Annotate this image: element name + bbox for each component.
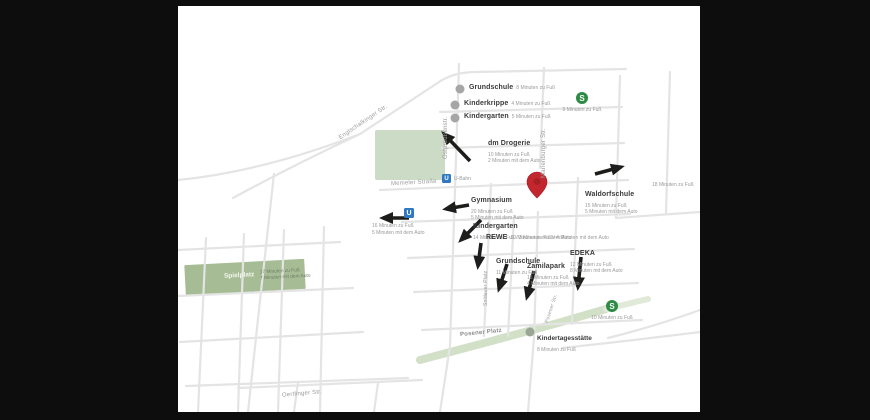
kindertagesstaette-dot <box>526 328 535 337</box>
screenshot-stage: Grundschule 8 Minuten zu Fuß Kinderkripp… <box>0 0 870 420</box>
poi-label: dm Drogerie <box>488 140 530 147</box>
ubahn-icon-west: U <box>404 208 414 218</box>
poi-label: Kindertagesstätte <box>537 335 592 342</box>
poi-label: Kindergarten <box>464 113 509 120</box>
ubahn-glyph: U <box>406 210 411 217</box>
poi-time-car: 4 Minuten mit dem Auto <box>527 281 580 288</box>
park-area <box>375 130 445 180</box>
poi-time-car: 5 Minuten mit dem Auto <box>372 230 425 237</box>
kinderkrippe-dot <box>451 101 460 110</box>
arrow-rewe <box>478 243 481 266</box>
poi-label: Grundschule <box>469 84 513 91</box>
sbahn-icon-bottom: S <box>606 300 618 312</box>
poi-rewe: REWE 10 Minuten zu Fuß / 4 Minuten mit d… <box>486 234 609 241</box>
poi-time: 10 Minuten zu Fuß <box>582 315 642 321</box>
poi-spielplatz-times: 17 Minuten zu Fuß 7 Minuten mit dem Auto <box>260 268 311 283</box>
neighborhood-map: Grundschule 8 Minuten zu Fuß Kinderkripp… <box>178 6 700 412</box>
poi-dm-drogerie: dm Drogerie 10 Minuten zu Fuß 2 Minuten … <box>488 131 541 165</box>
poi-label: Kindergarten <box>473 223 518 230</box>
poi-label: Gymnasium <box>471 197 512 204</box>
street-soldauer: Soldauer Platz <box>483 271 489 306</box>
ubahn-glyph: U <box>444 176 448 182</box>
poi-time: 18 Minuten zu Fuß <box>652 182 700 188</box>
poi-time: 9 Minuten zu Fuß <box>552 107 612 113</box>
ubahn-stop-label: U-Bahn <box>454 176 471 182</box>
poi-time: 4 Minuten zu Fuß <box>511 101 550 107</box>
poi-kindergarten-top: Kindergarten 5 Minuten zu Fuß <box>464 113 551 120</box>
sbahn-glyph: S <box>609 302 614 311</box>
grundschule-top-dot <box>456 85 465 94</box>
poi-time-car: 2 Minuten mit dem Auto <box>488 158 541 165</box>
poi-grundschule-top: Grundschule 8 Minuten zu Fuß <box>469 84 555 91</box>
street-network <box>178 64 700 412</box>
poi-waldorfschule: Waldorfschule 15 Minuten zu Fuß 5 Minute… <box>585 182 638 216</box>
poi-edeka: EDEKA 12 Minuten zu Fuß 8 Minuten mit de… <box>570 241 623 275</box>
poi-label: Waldorfschule <box>585 191 634 198</box>
street-ostpreussen: Ostpreußenstr. <box>443 117 449 159</box>
poi-sbahn-top: 9 Minuten zu Fuß <box>552 107 612 113</box>
poi-ubahn-west: 16 Minuten zu Fuß 5 Minuten mit dem Auto <box>372 223 425 236</box>
poi-edge-time: 18 Minuten zu Fuß <box>652 182 700 188</box>
poi-label: REWE <box>486 234 507 241</box>
ubahn-icon-top: U <box>442 174 451 183</box>
poi-kindertagesstaette: Kindertagesstätte 8 Minuten zu Fuß <box>537 326 592 353</box>
street-marienburger: Marienburger Str. <box>541 128 547 178</box>
poi-time: 5 Minuten zu Fuß <box>512 114 551 120</box>
poi-label: Kinderkrippe <box>464 100 508 107</box>
poi-kinderkrippe: Kinderkrippe 4 Minuten zu Fuß <box>464 100 550 107</box>
poi-time-car: 8 Minuten mit dem Auto <box>570 268 623 275</box>
poi-time-car: 5 Minuten mit dem Auto <box>585 209 638 216</box>
sbahn-glyph: S <box>579 94 584 103</box>
poi-sbahn-bottom: 10 Minuten zu Fuß <box>582 315 642 321</box>
arrow-gymnasium <box>446 205 469 209</box>
kindergarten-top-dot <box>451 114 460 123</box>
poi-label: EDEKA <box>570 250 595 257</box>
poi-time: 8 Minuten zu Fuß <box>537 347 592 354</box>
poi-label: Zamilapark <box>527 263 565 270</box>
poi-time: 8 Minuten zu Fuß <box>516 85 555 91</box>
sbahn-icon: S <box>576 92 588 104</box>
